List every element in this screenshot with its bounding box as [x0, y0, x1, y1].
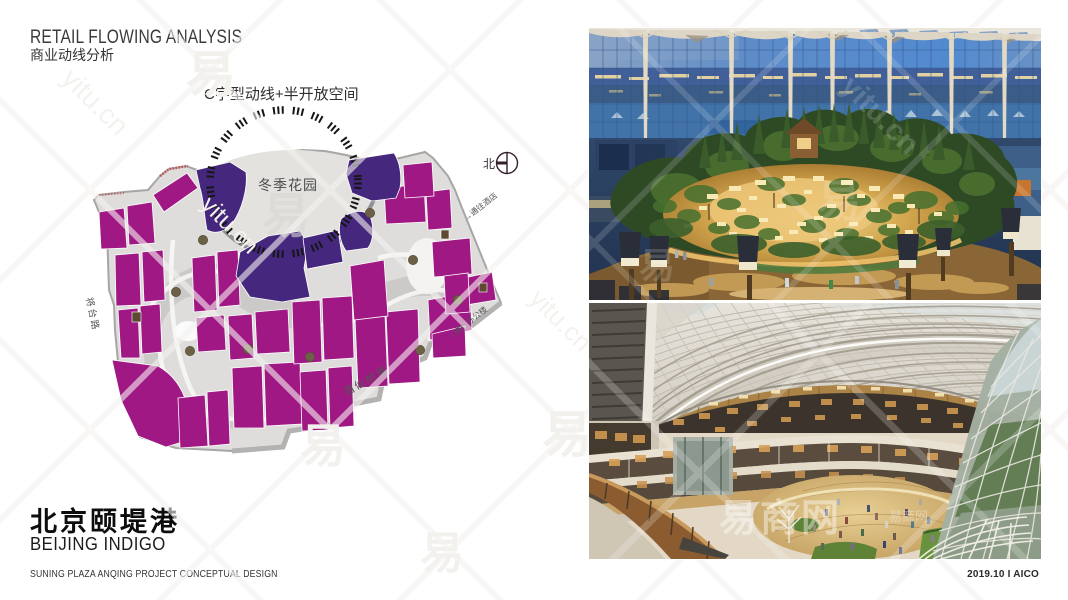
svg-text:北: 北: [483, 157, 495, 171]
svg-text:易: 易: [817, 177, 861, 226]
svg-text:易: 易: [262, 190, 310, 243]
svg-text:易: 易: [639, 245, 675, 286]
svg-text:将台路: 将台路: [83, 296, 102, 332]
svg-text:易商网: 易商网: [719, 498, 842, 540]
svg-text:易商网: 易商网: [889, 509, 928, 524]
svg-text:→通往酒店: →通往酒店: [461, 190, 499, 223]
svg-text:易: 易: [420, 529, 464, 578]
